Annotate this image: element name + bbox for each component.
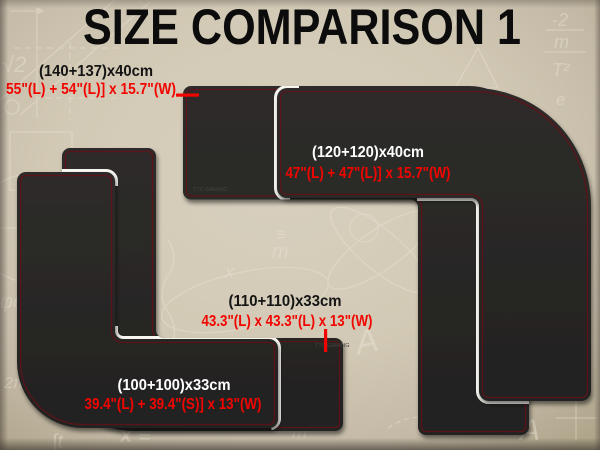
- svg-text:e: e: [556, 90, 565, 109]
- svg-text:≡: ≡: [276, 227, 285, 244]
- svg-text:TTC GAMING: TTC GAMING: [315, 343, 350, 349]
- svg-text:m: m: [554, 32, 569, 52]
- svg-text:(110+110)x33cm: (110+110)x33cm: [229, 293, 342, 310]
- svg-text:SIZE COMPARISON 1: SIZE COMPARISON 1: [83, 0, 521, 55]
- svg-text:(120+120)x40cm: (120+120)x40cm: [312, 144, 424, 161]
- svg-text:55"(L) + 54"(L)] x 15.7"(W): 55"(L) + 54"(L)] x 15.7"(W): [6, 81, 176, 98]
- svg-text:TTC GAMING: TTC GAMING: [193, 187, 228, 193]
- svg-text:(140+137)x40cm: (140+137)x40cm: [39, 63, 153, 80]
- svg-text:47"(L) + 47"(L)] x 15.7"(W): 47"(L) + 47"(L)] x 15.7"(W): [286, 165, 451, 182]
- svg-text:m: m: [272, 241, 289, 263]
- svg-text:(100+100)x33cm: (100+100)x33cm: [118, 377, 231, 394]
- svg-text:39.4"(L) + 39.4"(S)] x 13"(W): 39.4"(L) + 39.4"(S)] x 13"(W): [85, 396, 262, 413]
- svg-text:43.3"(L) x 43.3"(L) x 13"(W): 43.3"(L) x 43.3"(L) x 13"(W): [202, 313, 373, 330]
- svg-text:x: x: [224, 262, 235, 282]
- svg-text:-2: -2: [552, 10, 568, 30]
- svg-text:T²: T²: [552, 60, 570, 80]
